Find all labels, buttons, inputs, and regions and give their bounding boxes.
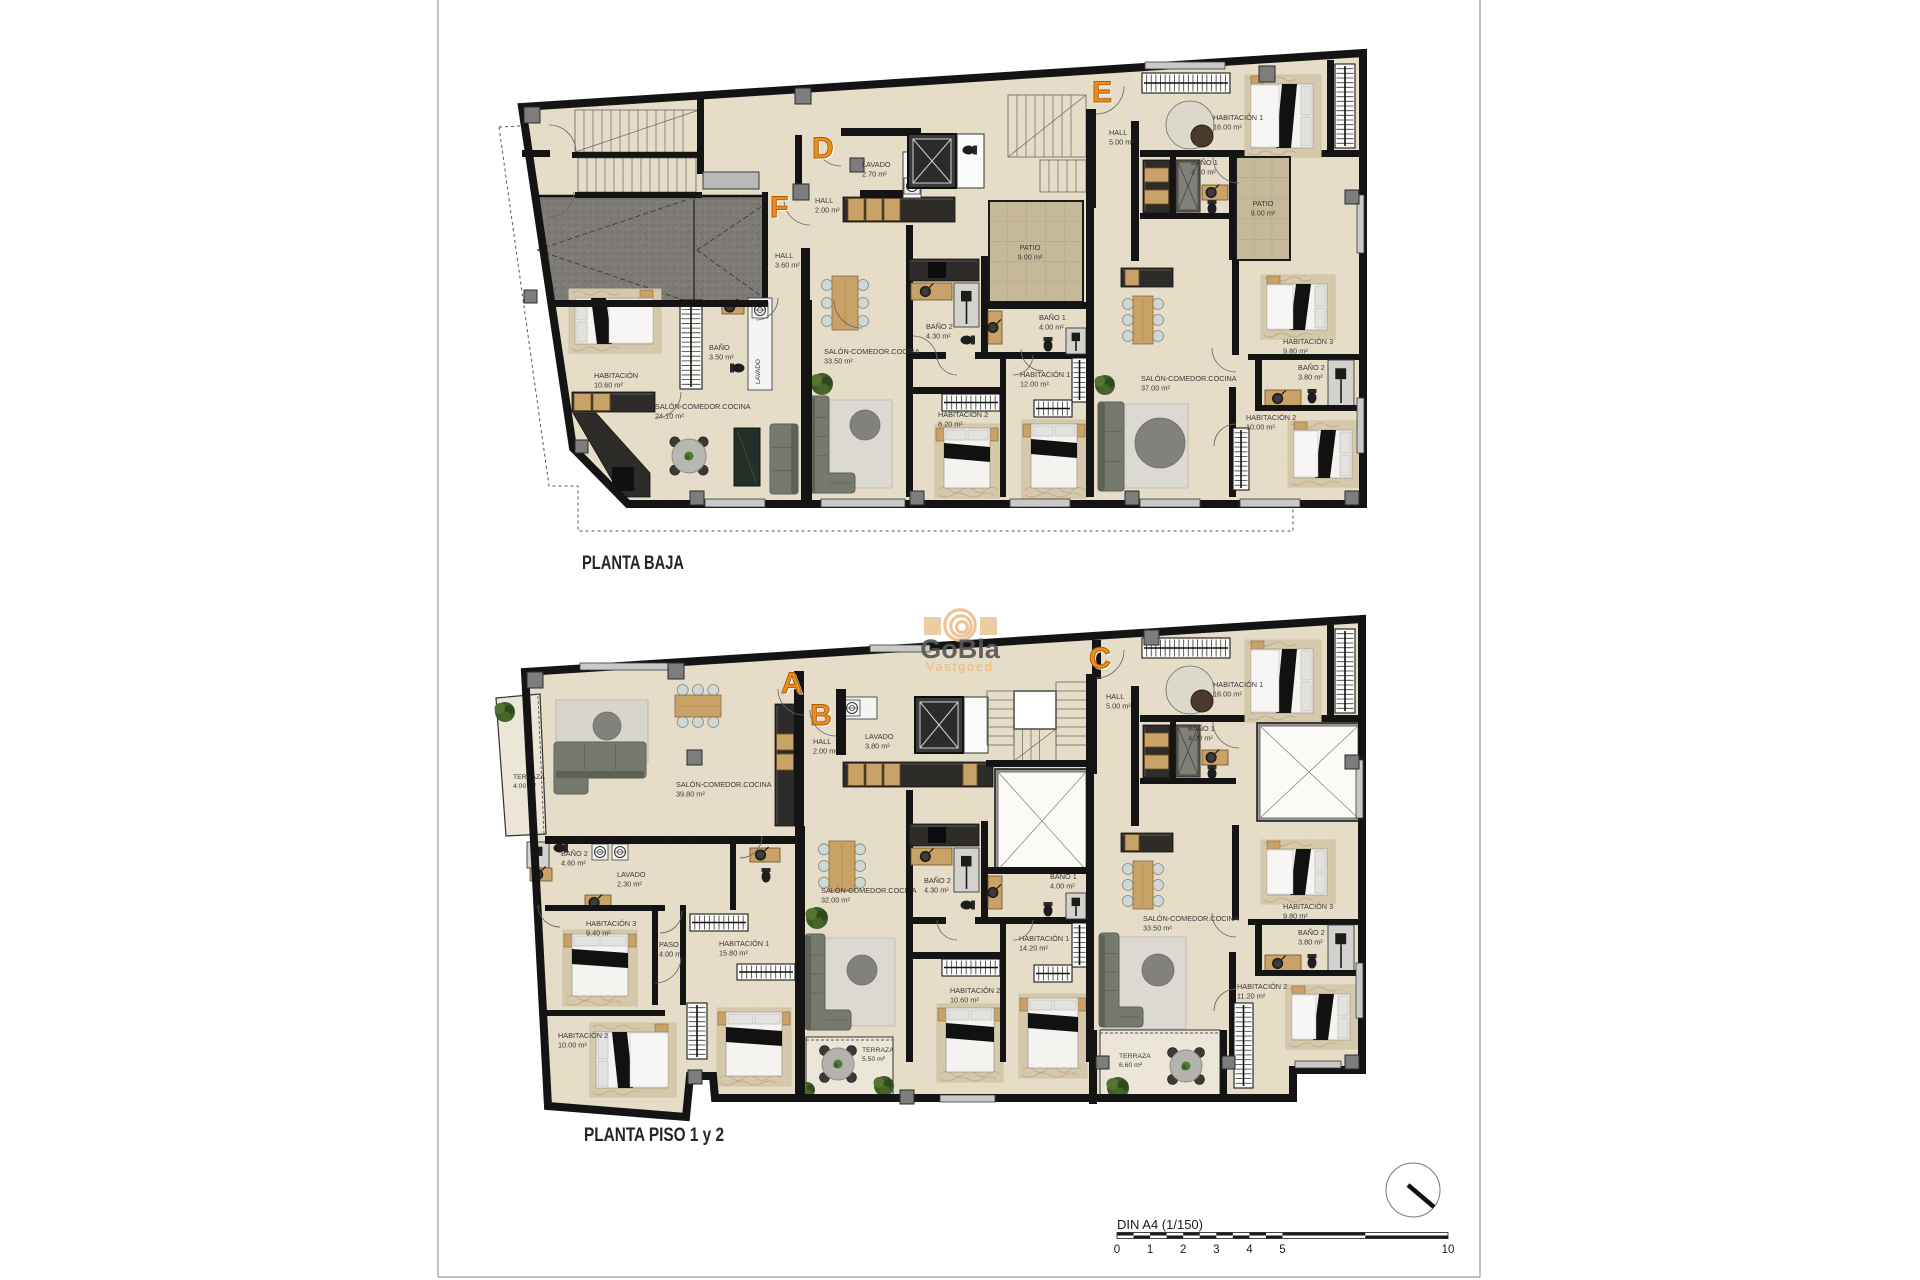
svg-text:3: 3: [1213, 1244, 1219, 1256]
svg-text:BAÑO 24.30 m²: BAÑO 24.30 m²: [924, 876, 951, 895]
svg-text:0: 0: [1114, 1244, 1120, 1256]
svg-text:BAÑO 14.20 m²: BAÑO 14.20 m²: [1188, 724, 1215, 743]
svg-text:LAVADO: LAVADO: [755, 359, 762, 384]
svg-text:DIN A4 (1/150): DIN A4 (1/150): [1117, 1217, 1203, 1232]
svg-text:BAÑO 24.60 m²: BAÑO 24.60 m²: [561, 849, 588, 868]
svg-text:LAVADO3.80 m²: LAVADO3.80 m²: [865, 732, 894, 751]
svg-text:F: F: [770, 191, 788, 224]
svg-text:BAÑO 23.80 m²: BAÑO 23.80 m²: [1298, 928, 1325, 947]
svg-text:BAÑO 24.30 m²: BAÑO 24.30 m²: [926, 322, 953, 341]
svg-text:A: A: [781, 667, 803, 700]
svg-text:PATIO9.00 m²: PATIO9.00 m²: [1018, 243, 1043, 262]
svg-text:5: 5: [1279, 1244, 1285, 1256]
svg-text:B: B: [810, 699, 832, 732]
svg-text:E: E: [1092, 76, 1112, 109]
svg-text:LAVADO2.70 m²: LAVADO2.70 m²: [862, 160, 891, 179]
svg-text:PLANTA PISO 1 y 2: PLANTA PISO 1 y 2: [584, 1125, 724, 1146]
svg-text:BAÑO 14.00 m²: BAÑO 14.00 m²: [1050, 872, 1077, 891]
svg-text:BAÑO 23.80 m²: BAÑO 23.80 m²: [1298, 363, 1325, 382]
svg-text:D: D: [812, 132, 834, 165]
svg-text:PLANTA BAJA: PLANTA BAJA: [582, 553, 684, 574]
svg-text:BAÑO 14.20 m²: BAÑO 14.20 m²: [1191, 158, 1218, 177]
svg-text:4: 4: [1246, 1244, 1253, 1256]
svg-text:C: C: [1089, 642, 1111, 675]
svg-text:LAVADO2.30 m²: LAVADO2.30 m²: [617, 870, 646, 889]
svg-text:PATIO9.00 m²: PATIO9.00 m²: [1251, 199, 1276, 218]
svg-text:Vastgoed: Vastgoed: [926, 660, 994, 674]
svg-text:10: 10: [1442, 1244, 1455, 1256]
svg-text:2: 2: [1180, 1244, 1186, 1256]
svg-text:1: 1: [1147, 1244, 1153, 1256]
svg-text:BAÑO 14.00 m²: BAÑO 14.00 m²: [1039, 313, 1066, 332]
